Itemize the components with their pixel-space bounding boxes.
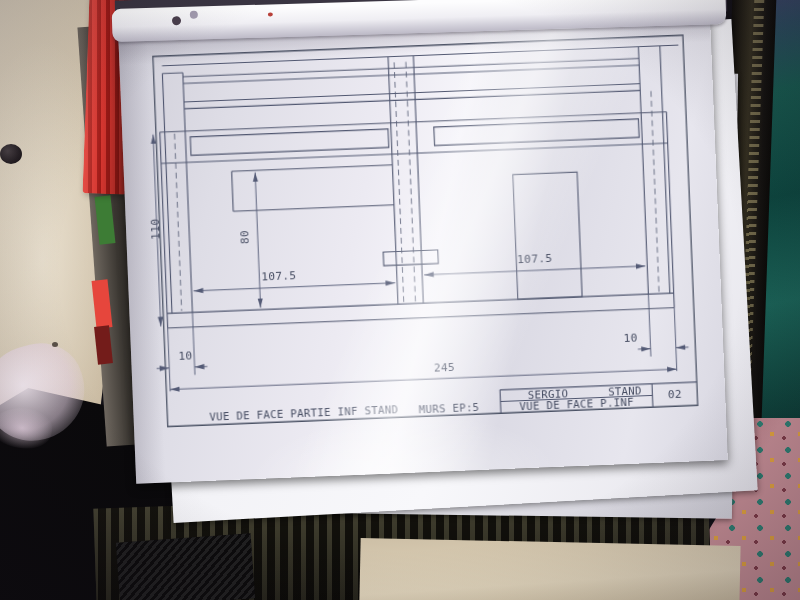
beige-fabric-bottom bbox=[359, 538, 740, 600]
black-woven-strap bbox=[116, 533, 255, 600]
dimension-label-left-10: 10 bbox=[178, 349, 193, 363]
header-panel-right bbox=[434, 119, 639, 146]
dimension-label-right-10: 10 bbox=[623, 331, 638, 345]
header-panel-left bbox=[190, 129, 389, 155]
dimension-label-left-107: 107.5 bbox=[261, 269, 297, 283]
dimension-label-110: 110 bbox=[148, 218, 162, 240]
dimension-total-width: 245 bbox=[169, 352, 676, 389]
photo-of-technical-drawing-in-binder: 110 80 107.5 107.5 10 10 bbox=[0, 0, 800, 600]
dimension-label-right-107: 107.5 bbox=[517, 252, 553, 266]
title-block-sheet-number: 02 bbox=[668, 388, 683, 402]
bracket bbox=[383, 250, 438, 266]
extension-lines bbox=[167, 293, 677, 391]
dimension-label-80: 80 bbox=[239, 230, 253, 245]
title-block: SERGIO STAND VUE DE FACE P.INF 02 bbox=[500, 382, 698, 415]
technical-drawing: 110 80 107.5 107.5 10 10 bbox=[143, 25, 704, 437]
header-band bbox=[160, 112, 668, 164]
stand-front-view bbox=[157, 45, 691, 391]
black-button bbox=[0, 144, 22, 164]
wall-thickness-note: MURS EP:5 bbox=[418, 401, 479, 416]
door-opening bbox=[513, 172, 582, 299]
dimension-right-bay: 107.5 bbox=[423, 248, 645, 275]
base-plate bbox=[167, 293, 674, 328]
drawing-sheet-in-sleeve: 110 80 107.5 107.5 10 10 bbox=[118, 10, 728, 483]
dimension-label-245: 245 bbox=[434, 361, 456, 375]
horizontal-rails bbox=[183, 58, 640, 108]
red-speck bbox=[268, 12, 273, 16]
drawing-frame bbox=[153, 35, 698, 426]
hidden-centerlines bbox=[172, 52, 659, 311]
dark-speck bbox=[52, 342, 58, 347]
dimension-right-offset: 10 bbox=[623, 329, 688, 349]
dimension-left-offset: 10 bbox=[156, 349, 207, 369]
dimension-left-bay: 107.5 bbox=[193, 265, 395, 291]
punch-hole bbox=[172, 16, 181, 25]
punch-hole bbox=[190, 11, 198, 19]
top-rail-line bbox=[162, 45, 678, 66]
annotation: VUE DE FACE PARTIE INF STAND MURS EP:5 bbox=[209, 400, 479, 425]
